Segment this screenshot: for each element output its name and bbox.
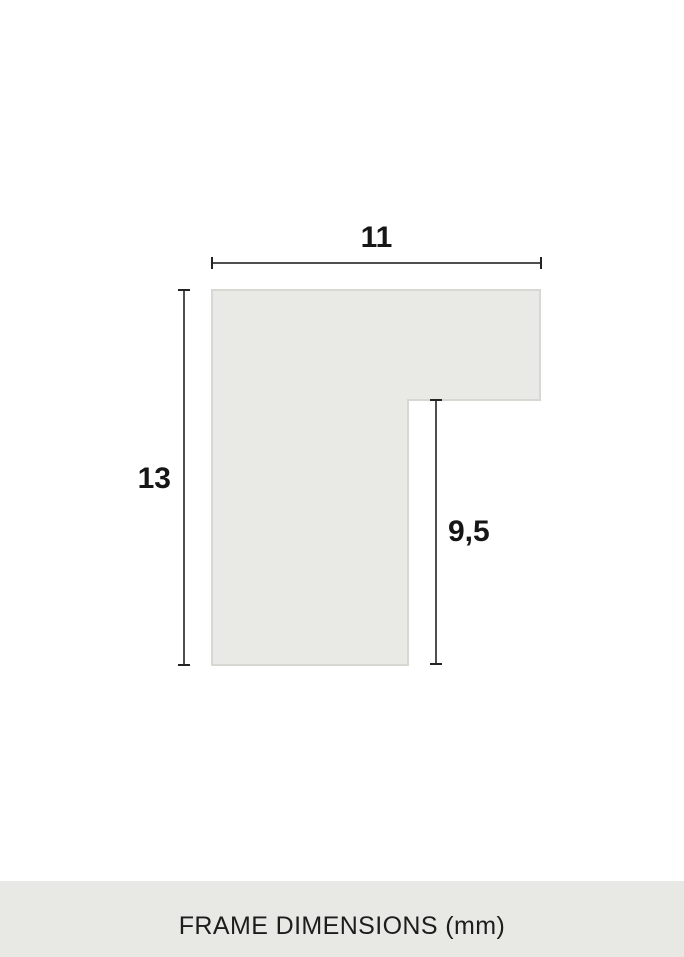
dimension-label-height: 13: [100, 461, 171, 497]
dimension-line-width: [212, 262, 541, 264]
footer-caption-text: FRAME DIMENSIONS (mm): [0, 912, 684, 940]
dimension-label-width: 11: [212, 220, 541, 256]
dimension-tick-bottom: [178, 664, 190, 666]
dimension-line-height: [183, 290, 185, 665]
dimension-tick-bottom: [430, 663, 442, 665]
frame-dimensions-diagram: 11 13 9,5 FRAME DIMENSIONS (mm): [0, 0, 684, 957]
dimension-tick-left: [211, 257, 213, 269]
dimension-tick-top: [430, 399, 442, 401]
footer-caption-bar: FRAME DIMENSIONS (mm): [0, 881, 684, 957]
dimension-tick-right: [540, 257, 542, 269]
frame-profile-polygon: [212, 290, 540, 665]
dimension-label-inner-height: 9,5: [448, 514, 490, 550]
dimension-line-inner-height: [435, 400, 437, 664]
dimension-tick-top: [178, 289, 190, 291]
